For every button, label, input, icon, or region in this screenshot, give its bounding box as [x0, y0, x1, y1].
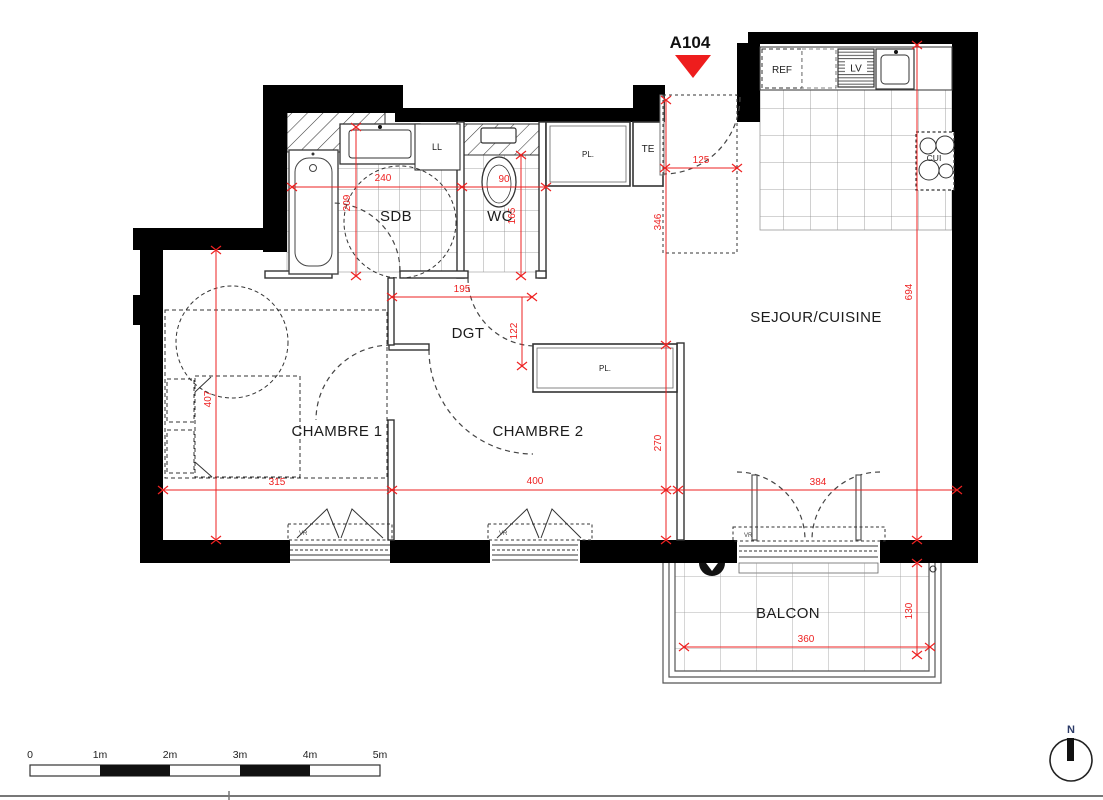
dishwasher: LV	[838, 49, 874, 87]
scale-tick-4: 4m	[303, 749, 318, 761]
pl-hall-label: PL.	[582, 150, 594, 159]
scale-bar-segment	[100, 765, 170, 776]
scale-bar-segment	[240, 765, 310, 776]
dim-wc-width: 90	[498, 174, 510, 185]
washing-machine: LL	[415, 124, 460, 170]
bed-fold-mark	[195, 462, 212, 477]
toilet	[481, 128, 516, 207]
wc-label: WC	[487, 208, 513, 225]
dim-chambre2-width: 400	[527, 476, 544, 487]
dim-chambre1-width: 315	[269, 477, 286, 488]
dim-chambre2-depth: 270	[653, 434, 664, 451]
counter-unit	[802, 49, 836, 88]
balcony-door-right-leaf	[856, 475, 861, 540]
chambre1-furniture-zone	[165, 310, 387, 478]
scale-tick-2: 2m	[163, 749, 178, 761]
dim-hall-depth: 346	[653, 213, 664, 230]
north-arrow: N	[1050, 724, 1092, 781]
chambre2-label: CHAMBRE 2	[492, 423, 583, 440]
scale-bar: 0 1m 2m 3m 4m 5m	[27, 749, 387, 776]
scale-bar-track	[30, 765, 380, 776]
chambre1-window-vr-label: VR	[299, 531, 308, 537]
unit-marker: A104	[670, 33, 711, 78]
entrance-hall-zone	[663, 95, 737, 253]
chambre2-window-vr-label: VR	[499, 531, 508, 537]
scale-tick-0: 0	[27, 749, 33, 761]
pl-chambre2-label: PL.	[599, 364, 611, 373]
dim-sejour-width: 384	[810, 477, 827, 488]
nightstand	[167, 379, 194, 422]
cooktop-label: CUI	[927, 153, 942, 163]
chambre1-window: VR	[288, 509, 392, 560]
dim-sdb-wc-width: 195	[454, 284, 471, 295]
chambre1-turning-circle	[176, 286, 288, 398]
dim-sdb-depth: 209	[342, 194, 353, 211]
entrance-marker-triangle	[675, 55, 711, 78]
balcon-label: BALCON	[756, 605, 820, 622]
dim-entrance-width: 125	[693, 155, 710, 166]
chambre1-door-swing	[316, 345, 391, 420]
dim-sdb-width: 240	[375, 173, 392, 184]
kitchen-sink	[876, 49, 914, 89]
dim-sejour-depth: 694	[904, 283, 915, 300]
washing-machine-label: LL	[432, 142, 442, 152]
chambre1-label: CHAMBRE 1	[291, 423, 382, 440]
closet-pl-hall: PL.	[546, 122, 630, 186]
balcony	[663, 563, 941, 683]
chambre2-window: VR	[488, 509, 592, 560]
sejour-label: SEJOUR/CUISINE	[750, 309, 881, 326]
closet-te: TE	[633, 122, 663, 186]
bed-fold-mark	[195, 377, 211, 392]
balcony-door-vr-label: VR	[744, 533, 753, 539]
dishwasher-label: LV	[850, 64, 862, 75]
scale-tick-1: 1m	[93, 749, 108, 761]
cooktop: CUI	[916, 132, 954, 190]
te-label: TE	[642, 144, 655, 155]
floor-plan-sheet: PL. TE PL. REF LV	[0, 0, 1103, 800]
scale-tick-5: 5m	[373, 749, 388, 761]
unit-label: A104	[670, 33, 711, 52]
dim-balcon-depth: 130	[904, 602, 915, 619]
dim-dgt-depth: 122	[509, 322, 520, 339]
dim-balcon-width: 360	[798, 634, 815, 645]
sdb-label: SDB	[380, 208, 412, 225]
fridge-label: REF	[772, 65, 792, 76]
scale-tick-3: 3m	[233, 749, 248, 761]
north-label: N	[1067, 724, 1075, 736]
sheet-border	[0, 791, 1103, 800]
balcony-door-left-swing	[737, 472, 805, 540]
balcony-door-left-leaf	[752, 475, 757, 540]
floor-plan-drawing: PL. TE PL. REF LV	[0, 0, 1103, 800]
dim-chambre1-depth: 407	[203, 390, 214, 407]
dgt-label: DGT	[452, 325, 485, 342]
closets: PL. TE PL.	[533, 122, 677, 392]
bathtub	[289, 150, 338, 274]
nightstand	[167, 430, 194, 473]
closet-pl-chambre2: PL.	[533, 344, 677, 392]
